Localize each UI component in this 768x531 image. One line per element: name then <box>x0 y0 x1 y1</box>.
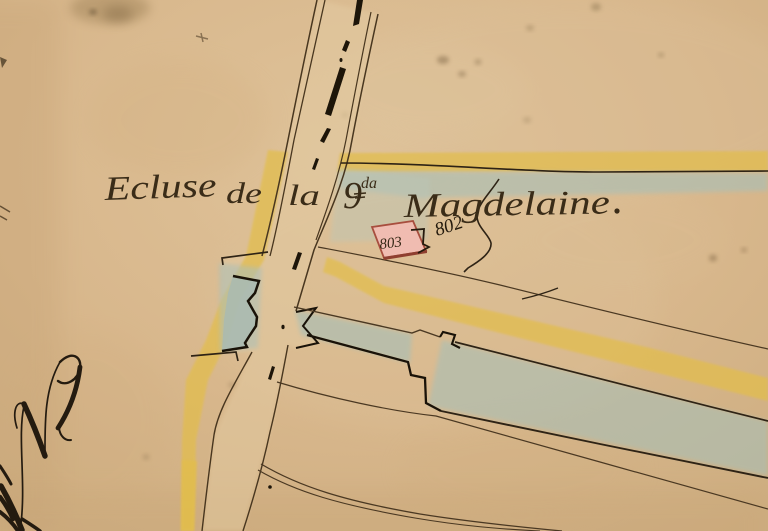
svg-text:de: de <box>226 177 262 210</box>
svg-text:9: 9 <box>343 175 362 217</box>
svg-text:803: 803 <box>379 234 403 253</box>
svg-text:Magdelaine: Magdelaine <box>402 184 610 225</box>
svg-text:la: la <box>288 179 320 212</box>
svg-text:Ecluse: Ecluse <box>103 167 217 208</box>
svg-text:da: da <box>361 175 377 192</box>
